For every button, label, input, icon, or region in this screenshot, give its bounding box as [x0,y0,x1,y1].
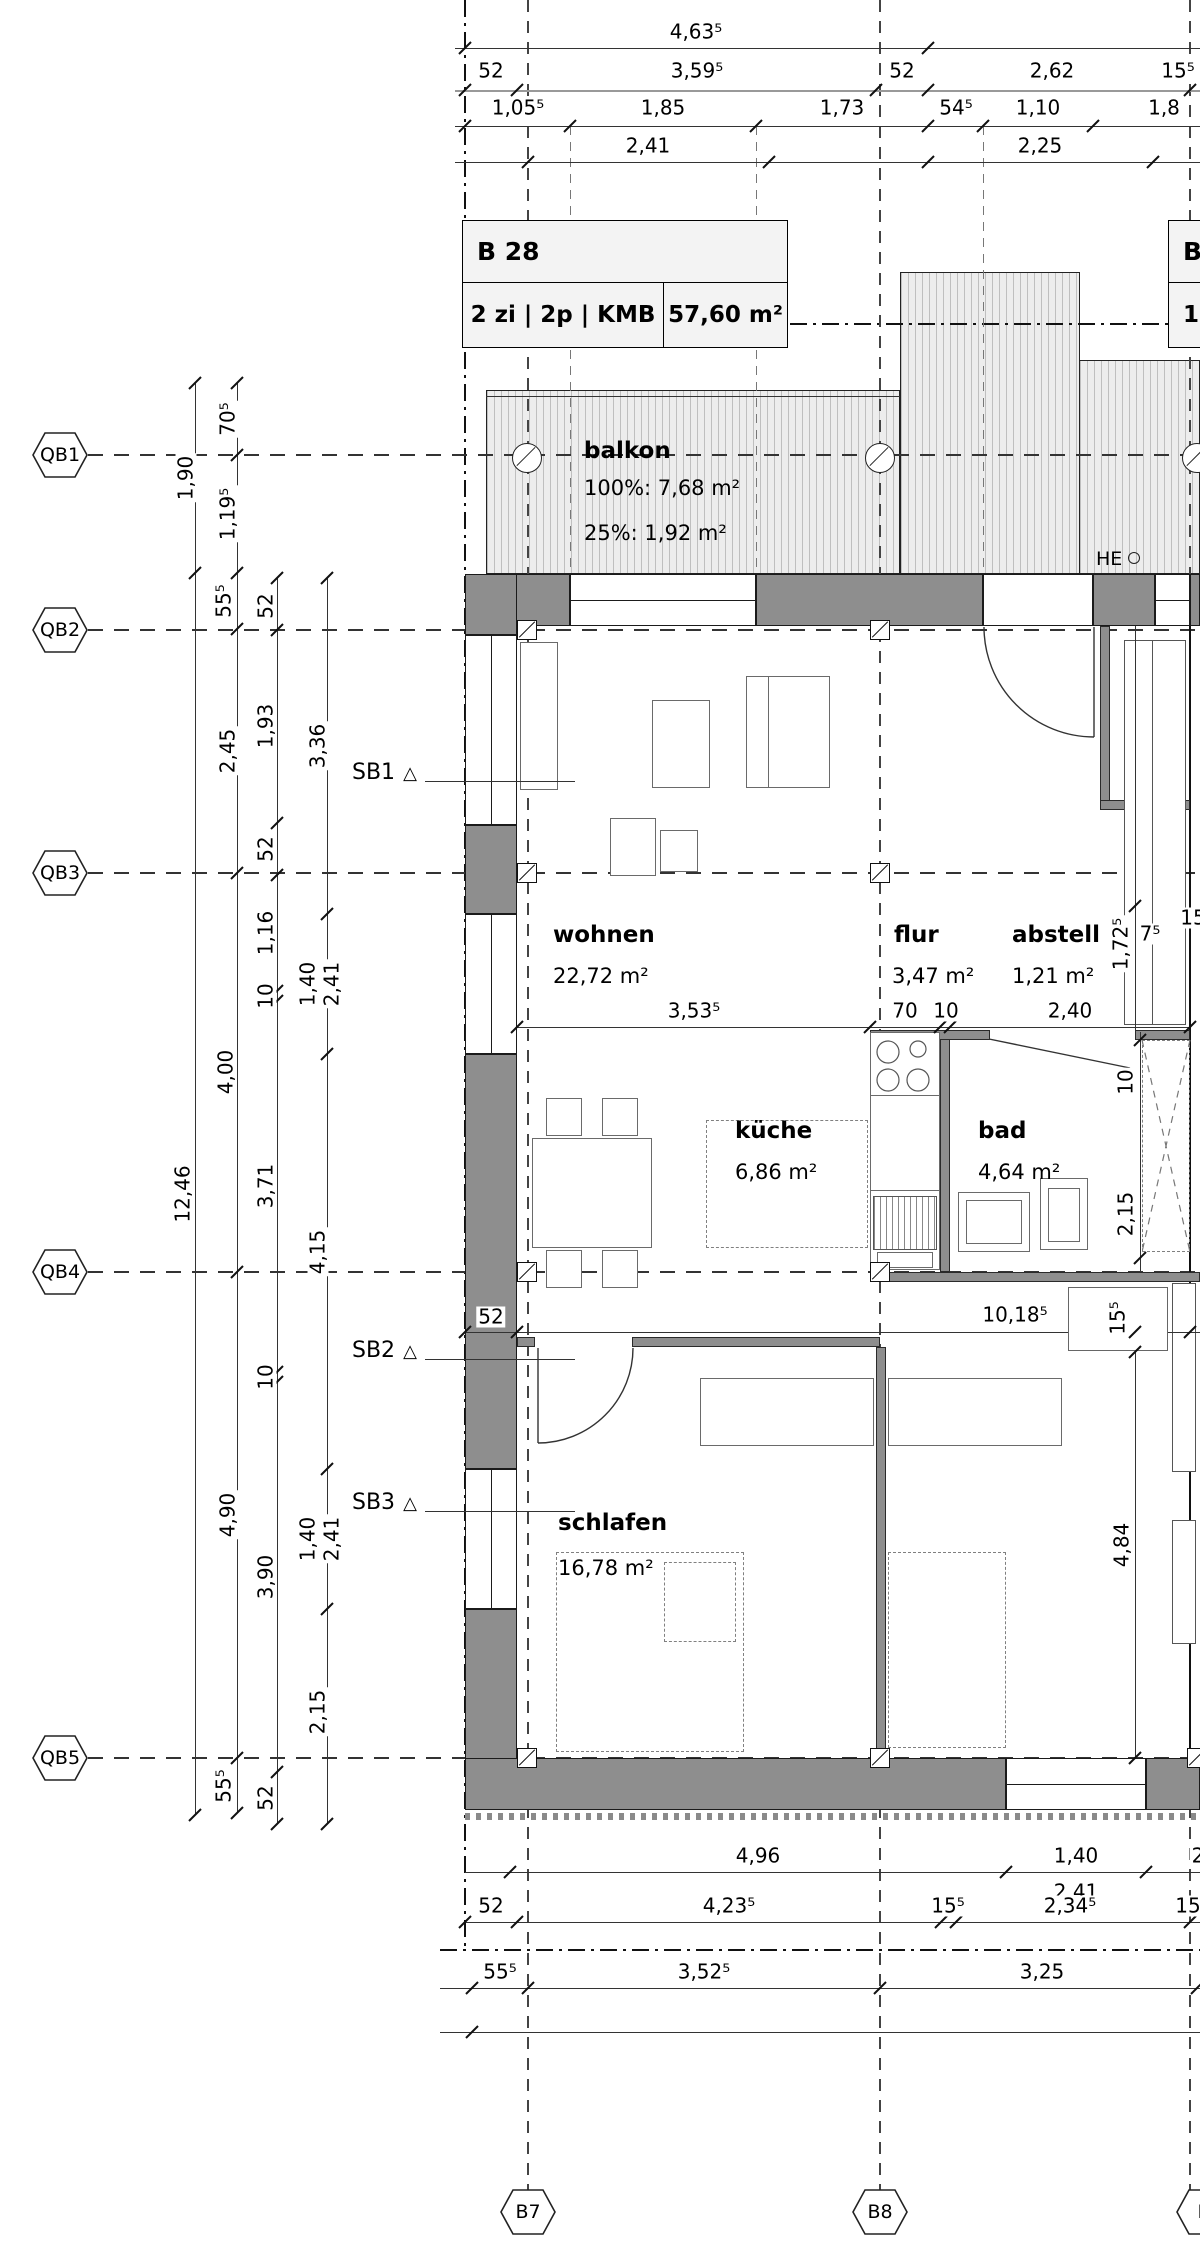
dimline-top-2 [455,90,1200,92]
label-he: HE [1096,548,1122,570]
pilaster-east-2 [1172,1520,1196,1644]
cooktop-burners [870,1032,940,1096]
dimension-label-left: 10 [256,981,277,1010]
dimension-label-interior: 10 [1116,1067,1137,1096]
dimline-abstell [1135,626,1136,1030]
dimension-label-interior: 10 [931,1001,960,1022]
dimension-label-bottom: 1,40 [1052,1846,1101,1867]
dimension-label-bottom: 4,23⁵ [701,1896,758,1917]
section-marker-leader [425,1359,575,1360]
dimension-label-left: 1,19⁵ [218,486,239,543]
dimension-label-left: 2,45 [218,727,239,776]
dimension-label-left: 2,41 [322,1515,343,1564]
dimension-label-bottom: 2 [1190,1846,1200,1867]
room-area-wohnen: 22,72 m² [553,964,649,988]
dimension-label-top: 54⁵ [937,98,974,119]
wall-north-3 [1093,574,1155,626]
dimension-label-left: 1,16 [256,909,277,958]
section-marker-label: SB2 [352,1338,395,1363]
dimension-label-top: 52 [476,61,505,82]
title-block-right-spec: 1 z [1169,283,1200,347]
room-area-abstell: 1,21 m² [1012,964,1094,988]
drain-symbol [865,443,895,473]
dimension-label-bottom: 52 [476,1896,505,1917]
neighbor-balcony-hatch-left [900,272,1080,574]
washbasin-inner [966,1200,1022,1244]
sofa-1 [652,700,710,788]
dimension-label-left: 55⁵ [214,582,235,619]
room-label-abstell: abstell [1012,922,1100,948]
balcony-railing-line [486,396,900,397]
insulation-strip-south [465,1813,1200,1820]
dimension-label-bottom: 3,52⁵ [676,1962,733,1983]
dimension-label-left: 52 [256,834,277,863]
dimension-label-interior: 15⁵ [1108,1299,1129,1336]
dimension-label-top: 1,05⁵ [490,98,547,119]
section-marker-label: SB3 [352,1490,395,1515]
dimline-top-4 [455,162,1200,163]
dimension-label-left: 1,40 [298,1515,319,1564]
dimension-label-left: 2,41 [322,960,343,1009]
dimline-left-1 [195,383,196,1815]
dimension-label-left: 12,46 [173,1163,194,1224]
dimline-top-1 [455,48,1200,49]
dimension-label-interior: 3,53⁵ [666,1001,723,1022]
window-west-schlafen [465,1469,517,1609]
dimension-label-left: 3,36 [308,722,329,771]
dimension-label-interior: 7⁵ [1138,924,1163,945]
wall-wohnen-schlafen-1 [517,1337,535,1347]
dimension-label-interior: 52 [476,1307,505,1328]
dimension-label-interior: 70 [890,1001,919,1022]
pillow-schlafen [664,1562,736,1642]
room-label-balkon: balkon [584,438,671,464]
window-west-wohnen-1 [465,635,517,825]
dimension-label-left: 4,90 [218,1491,239,1540]
dimension-label-left: 2,15 [308,1688,329,1737]
balcony-door-window [570,574,756,626]
dimline-484 [1135,1352,1136,1758]
column-symbol [870,1262,890,1282]
shaft-divider [1152,641,1153,1024]
wardrobe-schlafen [700,1378,874,1446]
dimension-label-left: 52 [256,1783,277,1812]
room-label-schlafen: schlafen [558,1510,667,1536]
room-area-balkon-25: 25%: 1,92 m² [584,521,727,545]
shower-cross [1142,1040,1190,1252]
title-block-right: B 1 z [1168,220,1200,348]
bed-right-room [888,1552,1006,1748]
dimension-label-top: 2,62 [1028,61,1077,82]
coffee-table-2 [660,830,698,872]
wardrobe-right-room [888,1378,1062,1446]
grid-marker-hexagon: QB4 [31,1248,89,1296]
window-north-fragment [1155,574,1190,626]
coffee-table-1 [610,818,656,876]
dimension-label-left: 55⁵ [214,1767,235,1804]
dimension-label-top: 2,41 [624,136,673,157]
dimension-label-left: 3,90 [256,1553,277,1602]
wall-south-1 [465,1758,1006,1810]
dimline-bad [1140,1032,1141,1272]
dimension-label-left: 4,00 [216,1048,237,1097]
room-label-kueche: küche [735,1118,812,1144]
dimension-label-left: 3,71 [256,1162,277,1211]
pilaster-east-1 [1172,1283,1196,1472]
sofa-2 [746,676,830,788]
dimension-label-bottom: 15⁵ [1173,1896,1200,1917]
section-marker-leader [425,1511,575,1512]
dimension-label-top: 52 [887,61,916,82]
dimension-label-bottom: 15⁵ [929,1896,966,1917]
dining-chair-1 [546,1098,582,1136]
wall-west-2 [465,825,517,914]
shelf-wohnen [520,642,558,790]
boundary-line-south [440,1949,1200,1951]
dimension-label-top: 3,59⁵ [669,61,726,82]
axis-marker-hexagon: B7 [499,2188,557,2236]
dimension-label-top: 1,10 [1014,98,1063,119]
grid-marker-hexagon: QB5 [31,1734,89,1782]
grid-marker-hexagon: QB3 [31,849,89,897]
wall-north-4 [1190,574,1200,626]
dimension-label-bottom: 3,25 [1018,1962,1067,1983]
dimension-label-interior: 2,40 [1046,1001,1095,1022]
section-marker-label: SB1 [352,760,395,785]
room-area-balkon-100: 100%: 7,68 m² [584,476,740,500]
axis-marker-hexagon: B [1175,2188,1200,2236]
dimension-label-interior: 10,18⁵ [980,1305,1049,1326]
dimension-label-top: 4,63⁵ [668,22,725,43]
dining-chair-2 [602,1098,638,1136]
wall-schlafen-east [876,1347,886,1758]
dimension-label-top: 15⁵ [1159,61,1196,82]
section-marker: SB1△ [352,760,417,785]
dimension-label-left: 52 [256,591,277,620]
title-block-b28-spec: 2 zi | 2p | KMB [463,283,664,347]
column-symbol [870,620,890,640]
section-marker-leader [425,781,575,782]
dimension-label-top: 1,73 [818,98,867,119]
triangle-icon: △ [403,763,417,784]
room-label-wohnen: wohnen [553,922,655,948]
grid-marker-hexagon: QB2 [31,606,89,654]
dimline-interior-1 [517,1027,1190,1028]
entry-door-opening [983,574,1093,626]
dimension-label-interior: 1,72⁵ [1111,916,1132,973]
jamb-line-1 [570,126,571,574]
room-area-flur: 3,47 m² [892,964,974,988]
floor-plan-drawing: 4,63⁵523,59⁵522,6215⁵1,05⁵1,851,7354⁵1,1… [0,0,1200,2243]
title-block-b28-area: 57,60 m² [664,283,787,347]
dimension-label-top: 1,85 [639,98,688,119]
dimline-bottom-3 [440,1988,1200,1989]
dimension-label-left: 4,15 [308,1228,329,1277]
wc-inner [1048,1188,1080,1242]
room-label-bad: bad [978,1118,1026,1144]
wall-bad-south [870,1272,1200,1282]
dimension-label-left: 10 [256,1362,277,1391]
window-west-wohnen-2 [465,914,517,1054]
sofa-2-armrest-line [768,677,769,787]
axis-marker-hexagon: B8 [851,2188,909,2236]
title-block-b28: B 28 2 zi | 2p | KMB 57,60 m² [462,220,788,348]
dimension-label-left: 1,93 [256,702,277,751]
room-area-bad: 4,64 m² [978,1160,1060,1184]
dimension-label-bottom: 2,34⁵ [1042,1896,1099,1917]
section-marker: SB2△ [352,1338,417,1363]
triangle-icon: △ [403,1493,417,1514]
he-circle-icon [1128,552,1140,564]
room-area-schlafen: 16,78 m² [558,1556,654,1580]
dimension-label-left: 1,90 [176,454,197,503]
dimension-label-top: 2,25 [1016,136,1065,157]
column-symbol [517,1262,537,1282]
dimension-label-interior: 4,84 [1112,1521,1133,1570]
dimline-bottom-1 [465,1872,1200,1873]
room-label-flur: flur [894,922,939,948]
column-symbol [1187,1748,1200,1768]
wall-wohnen-schlafen-2 [632,1337,880,1347]
dimension-label-bottom: 55⁵ [481,1962,518,1983]
jamb-line-2 [756,126,757,574]
dimline-left-2 [237,383,238,1813]
title-block-right-name: B [1169,221,1200,283]
column-symbol [870,863,890,883]
dimline-bottom-2 [465,1922,1200,1923]
drain-symbol [512,443,542,473]
dining-chair-3 [546,1250,582,1288]
column-symbol [870,1748,890,1768]
dimension-label-interior: 2,15 [1116,1190,1137,1239]
wall-west-1 [465,574,517,635]
dining-chair-4 [602,1250,638,1288]
separation-line-top [790,323,1200,325]
room-area-kueche: 6,86 m² [735,1160,817,1184]
wall-abstell-west [1100,626,1110,810]
grid-marker-hexagon: QB1 [31,431,89,479]
dimension-label-bottom: 4,96 [734,1846,783,1867]
jamb-line-3 [983,126,984,574]
bad-door-leaf [988,1036,1132,1072]
kitchen-counter-divider-2 [871,1190,939,1191]
dimension-label-top: 1,8 [1146,98,1182,119]
kitchen-sink-hatch [873,1196,937,1250]
window-south-schlafen [1006,1758,1146,1810]
triangle-icon: △ [403,1341,417,1362]
title-block-b28-name: B 28 [463,221,787,283]
wall-north-2 [756,574,983,626]
column-symbol [517,620,537,640]
schlafen-door-arc [537,1347,636,1446]
column-symbol [517,1748,537,1768]
shaft-abstell [1124,640,1186,1025]
dimension-label-interior: 15⁵ [1178,908,1200,929]
section-marker: SB3△ [352,1490,417,1515]
wall-kueche-bad [940,1032,950,1272]
dining-table [532,1138,652,1248]
dimension-label-left: 70⁵ [218,400,239,437]
dimline-bottom-4 [440,2032,1200,2033]
column-symbol [517,863,537,883]
entry-door-arc [983,626,1097,740]
neighbor-balcony-hatch-right [1079,360,1200,574]
wall-west-3 [465,1054,517,1469]
dimension-label-left: 1,40 [298,960,319,1009]
